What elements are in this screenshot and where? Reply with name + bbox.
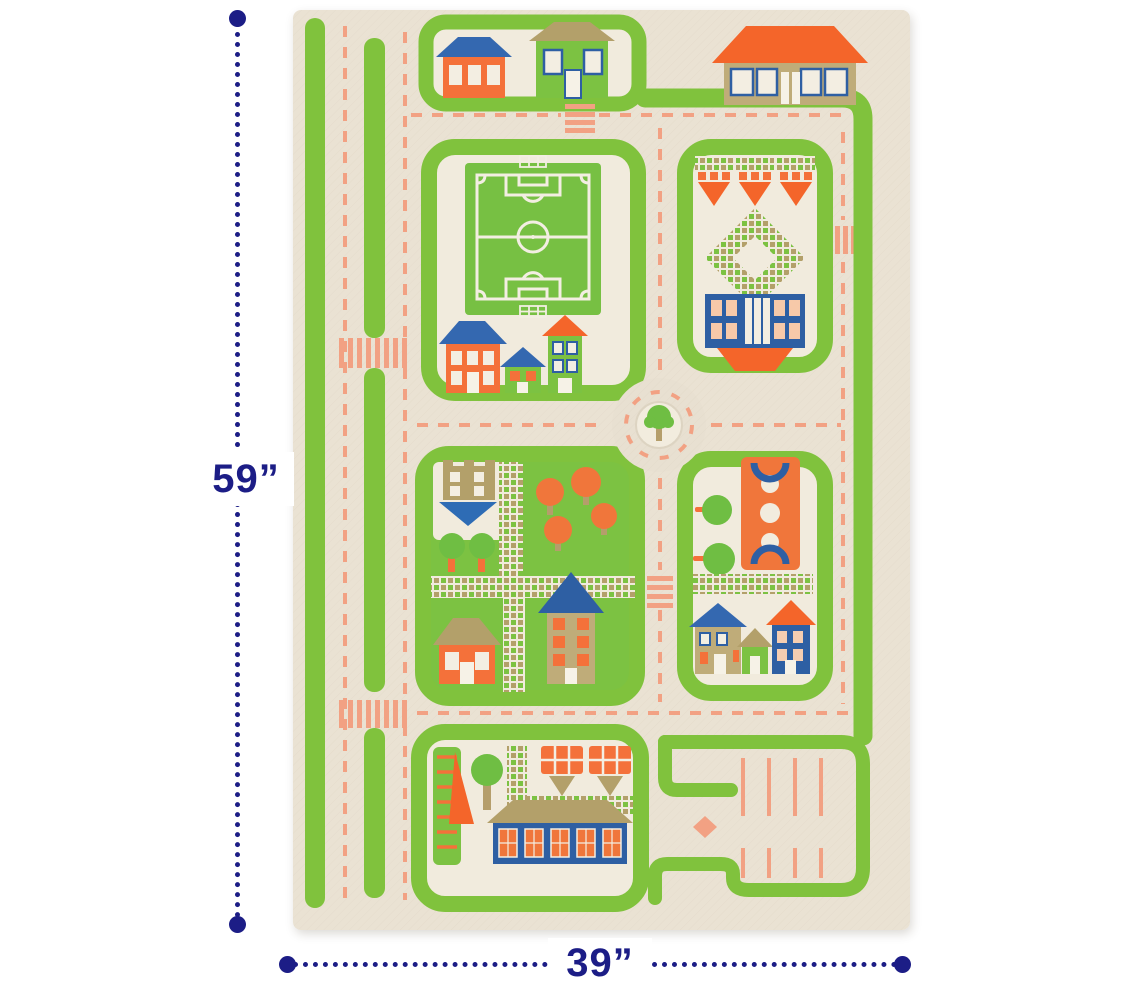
width-label: 39” xyxy=(548,938,652,988)
height-label: 59” xyxy=(198,452,294,506)
product-image-canvas: 59” 39” xyxy=(0,0,1124,999)
school-building xyxy=(487,800,633,864)
garden-block xyxy=(695,156,815,371)
dimension-endpoint-dot-top xyxy=(229,10,246,27)
crosswalk-right-road xyxy=(835,226,856,254)
play-rug-svg xyxy=(293,10,910,930)
basketball-court xyxy=(741,457,800,570)
play-rug-image xyxy=(293,10,910,930)
dimension-endpoint-dot-left xyxy=(279,956,296,973)
dimension-endpoint-dot-right xyxy=(894,956,911,973)
house-orange-roof-tan xyxy=(712,26,868,105)
house-green-tan-roof xyxy=(529,22,615,98)
roundabout-with-tree xyxy=(612,378,706,472)
soccer-field xyxy=(465,156,601,317)
dimension-endpoint-dot-bottom xyxy=(229,916,246,933)
